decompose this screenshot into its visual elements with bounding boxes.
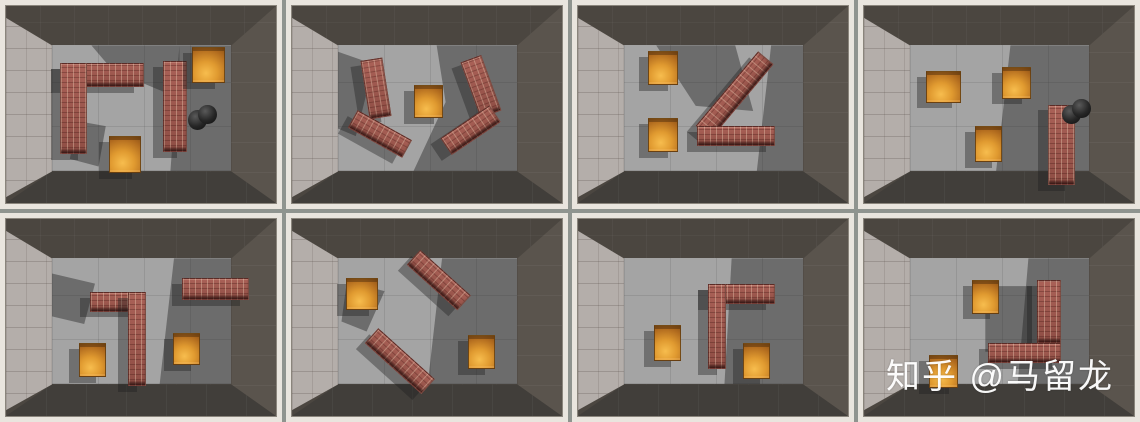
orange-crate-object [468, 335, 495, 368]
orange-crate-object [648, 51, 678, 84]
scene-panel-7 [572, 213, 854, 422]
brick-wall-object [128, 292, 147, 387]
orange-crate-object [926, 71, 961, 103]
scene-panel-5 [0, 213, 282, 422]
scene-render [5, 5, 277, 204]
scene-render [577, 5, 849, 204]
scene-render [863, 5, 1135, 204]
orange-crate-object [1002, 67, 1032, 99]
brick-wall-object [708, 284, 727, 369]
brick-wall-object [696, 51, 774, 138]
orange-crate-object [648, 118, 678, 151]
scene-panel-1 [0, 0, 282, 209]
brick-wall-object [697, 126, 775, 146]
black-sphere-object [198, 105, 217, 125]
scene-panel-4 [858, 0, 1140, 209]
simulation-screenshot-collage: 知乎 @马留龙 [0, 0, 1140, 422]
black-sphere-object [1072, 99, 1091, 119]
objects-layer [6, 6, 276, 203]
scene-render [291, 218, 563, 417]
brick-wall-object [60, 63, 87, 154]
orange-crate-object [743, 343, 770, 378]
scene-render [577, 218, 849, 417]
orange-crate-object [972, 280, 999, 313]
objects-layer [578, 6, 848, 203]
orange-crate-object [975, 126, 1002, 161]
zhihu-watermark: 知乎 @马留龙 [886, 349, 1114, 398]
objects-layer [864, 6, 1134, 203]
scene-panel-3 [572, 0, 854, 209]
brick-wall-object [1037, 280, 1061, 343]
objects-layer [6, 219, 276, 416]
objects-layer [292, 219, 562, 416]
objects-layer [292, 6, 562, 203]
brick-wall-object [182, 278, 250, 300]
scene-render [291, 5, 563, 204]
scene-render [5, 218, 277, 417]
orange-crate-object [109, 136, 141, 173]
orange-crate-object [346, 278, 378, 310]
scene-panel-6 [286, 213, 568, 422]
orange-crate-object [654, 325, 681, 360]
scene-panel-2 [286, 0, 568, 209]
orange-crate-object [192, 47, 224, 82]
objects-layer [578, 219, 848, 416]
orange-crate-object [414, 85, 444, 118]
orange-crate-object [79, 343, 106, 376]
orange-crate-object [173, 333, 200, 365]
